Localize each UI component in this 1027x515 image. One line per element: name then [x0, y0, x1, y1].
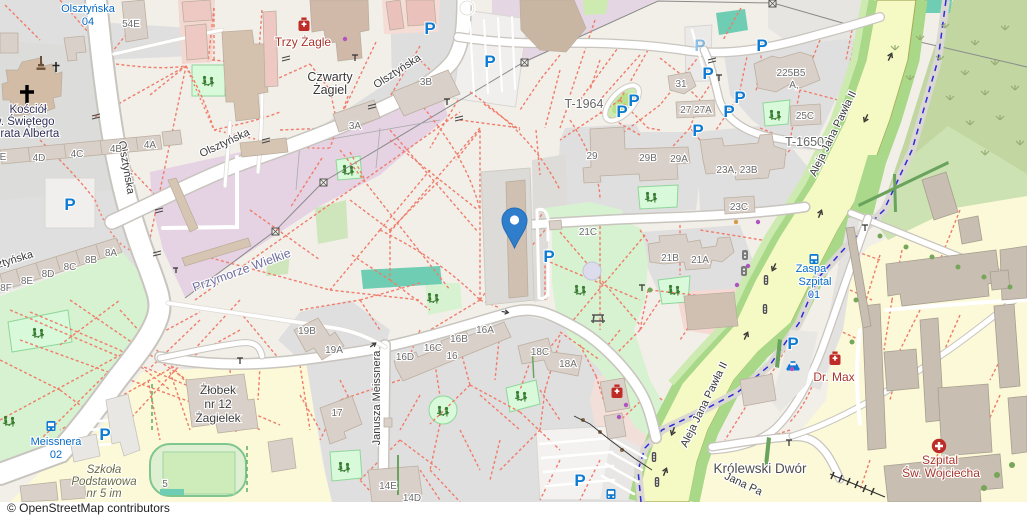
svg-text:8F: 8F	[0, 283, 12, 294]
svg-text:Szpital: Szpital	[798, 276, 831, 288]
svg-text:18C: 18C	[531, 347, 549, 358]
svg-text:21C: 21C	[579, 227, 597, 238]
svg-text:A,: A,	[789, 80, 798, 91]
svg-text:Żagielek: Żagielek	[195, 411, 241, 425]
svg-text:Meissnera: Meissnera	[31, 436, 83, 448]
svg-text:Szkoła: Szkoła	[87, 464, 122, 476]
svg-text:4B: 4B	[110, 144, 123, 155]
svg-text:3B: 3B	[420, 77, 433, 88]
svg-text:19A: 19A	[325, 345, 343, 356]
svg-text:25C: 25C	[796, 111, 814, 122]
svg-text:P: P	[756, 36, 767, 55]
svg-text:P: P	[64, 195, 75, 214]
svg-text:P: P	[723, 102, 734, 121]
svg-text:P: P	[543, 247, 554, 266]
svg-text:17: 17	[331, 408, 343, 419]
svg-text:P: P	[628, 91, 639, 110]
svg-text:Szpital: Szpital	[922, 453, 958, 467]
svg-text:E: E	[0, 152, 7, 163]
svg-text:nr 12: nr 12	[204, 397, 232, 411]
svg-text:Św. Świętego: Św. Świętego	[0, 115, 55, 128]
svg-text:P: P	[424, 19, 435, 38]
svg-text:16A: 16A	[476, 325, 494, 336]
svg-text:23C: 23C	[730, 202, 748, 213]
svg-text:21B: 21B	[661, 253, 679, 264]
svg-text:P: P	[574, 471, 585, 490]
svg-text:29A: 29A	[670, 154, 688, 165]
svg-text:P: P	[99, 425, 110, 444]
svg-text:Trzy Żagle: Trzy Żagle	[275, 35, 332, 49]
svg-text:P: P	[787, 334, 798, 353]
svg-text:21A: 21A	[691, 255, 709, 266]
svg-text:29B: 29B	[639, 153, 657, 164]
svg-text:Zaspa: Zaspa	[796, 263, 827, 275]
svg-text:Żagiel: Żagiel	[313, 83, 347, 97]
svg-text:P: P	[484, 52, 495, 71]
svg-text:nr 5 im: nr 5 im	[86, 488, 122, 500]
svg-text:P: P	[734, 88, 745, 107]
svg-text:29: 29	[586, 151, 598, 162]
svg-text:T-1964: T-1964	[565, 97, 604, 111]
svg-text:5: 5	[162, 479, 168, 490]
svg-text:16C: 16C	[424, 343, 442, 354]
svg-text:04: 04	[82, 16, 94, 28]
svg-text:23A, 23B: 23A, 23B	[716, 165, 757, 176]
svg-text:8C: 8C	[64, 262, 77, 273]
svg-text:Janusza Meissnera: Janusza Meissnera	[371, 350, 383, 446]
svg-text:8E: 8E	[21, 276, 34, 287]
svg-text:P: P	[694, 36, 705, 55]
svg-text:8D: 8D	[42, 269, 55, 280]
svg-text:Brata Alberta: Brata Alberta	[0, 128, 60, 140]
svg-text:31: 31	[675, 79, 687, 90]
svg-text:19B: 19B	[298, 326, 316, 337]
svg-text:27 27A: 27 27A	[680, 105, 712, 116]
svg-text:4C: 4C	[71, 149, 84, 160]
svg-text:Czwarty: Czwarty	[307, 70, 353, 84]
svg-text:54E: 54E	[122, 19, 140, 30]
svg-text:02: 02	[50, 449, 62, 461]
svg-text:Kościół: Kościół	[9, 104, 47, 116]
svg-text:01: 01	[808, 289, 820, 301]
svg-text:P: P	[616, 102, 627, 121]
svg-text:16D: 16D	[396, 352, 414, 363]
svg-text:8B: 8B	[85, 255, 98, 266]
svg-text:16B: 16B	[450, 334, 468, 345]
svg-text:P: P	[702, 64, 713, 83]
svg-text:18A: 18A	[559, 359, 577, 370]
svg-text:4D: 4D	[33, 153, 46, 164]
svg-text:16: 16	[446, 351, 458, 362]
svg-text:3A: 3A	[349, 121, 362, 132]
svg-text:14E: 14E	[379, 481, 397, 492]
svg-text:Żłobek: Żłobek	[200, 383, 237, 397]
svg-text:225B5: 225B5	[777, 68, 806, 79]
svg-text:Dr. Max: Dr. Max	[813, 370, 854, 384]
svg-text:4A: 4A	[144, 140, 157, 151]
svg-text:8A: 8A	[105, 248, 118, 259]
svg-text:Olsztyńska: Olsztyńska	[61, 3, 116, 15]
svg-text:Św. Wojciecha: Św. Wojciecha	[902, 465, 980, 480]
svg-text:P: P	[692, 121, 703, 140]
svg-text:Podstawowa: Podstawowa	[71, 476, 136, 488]
